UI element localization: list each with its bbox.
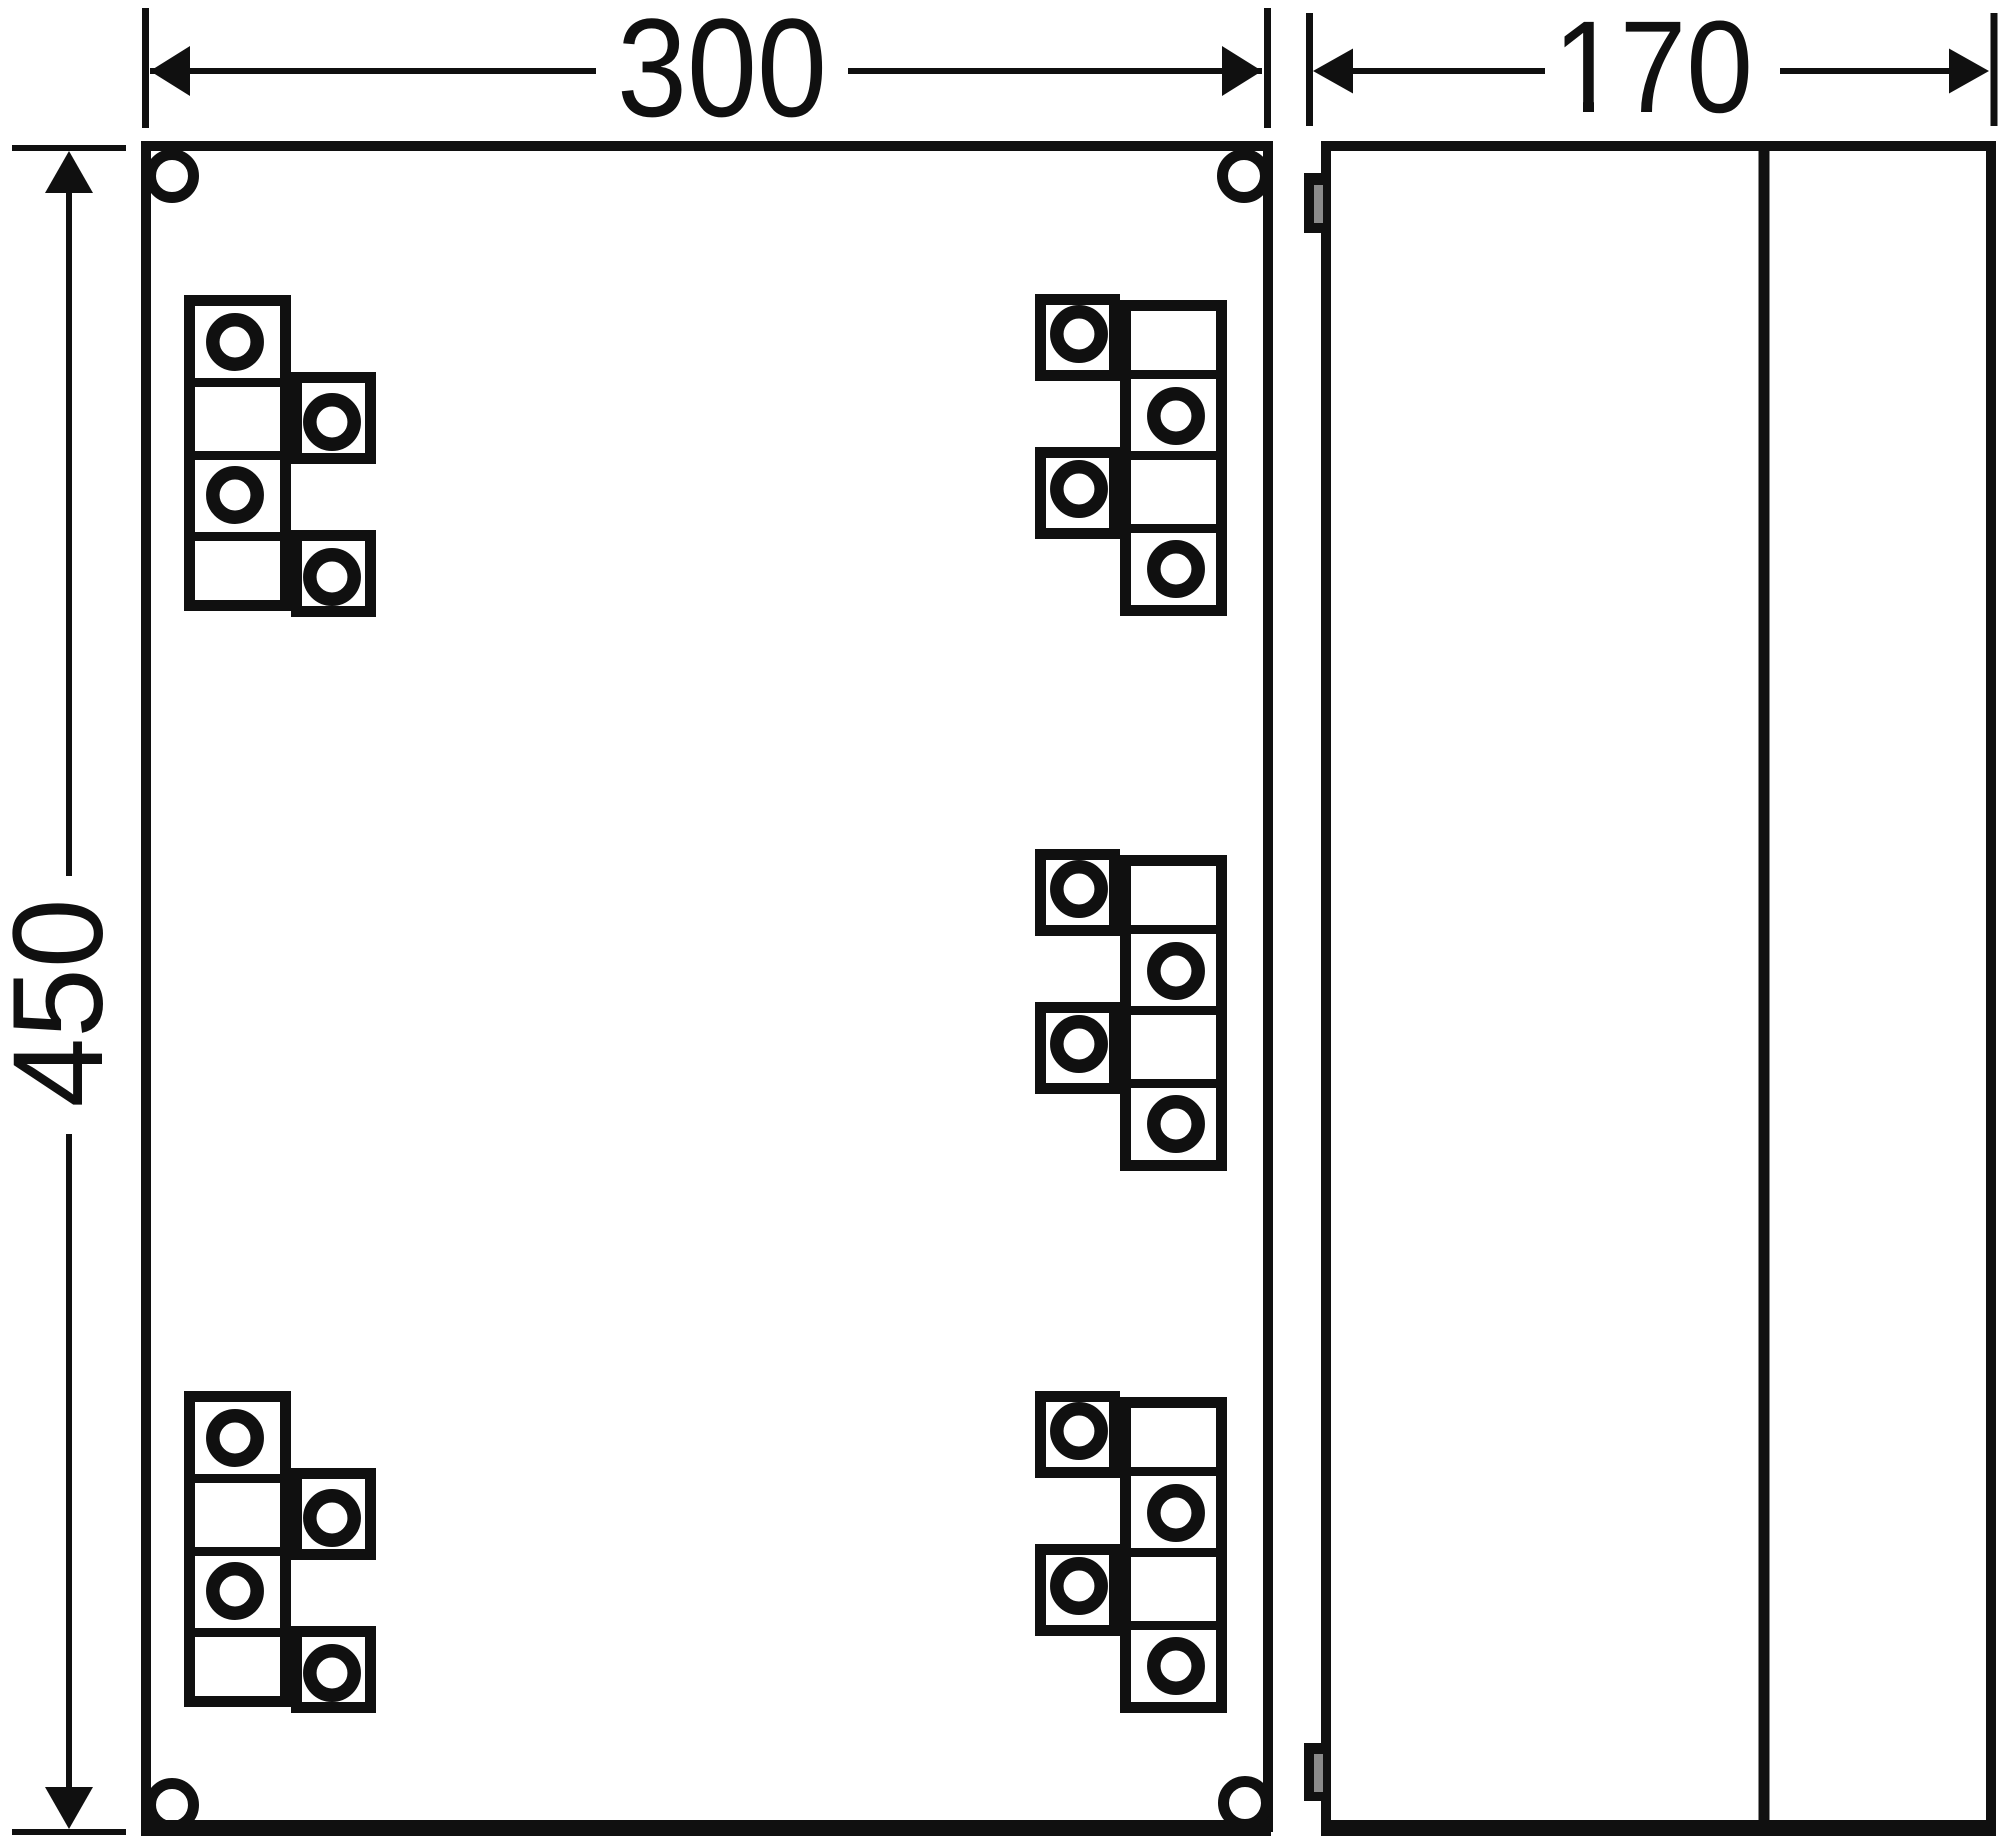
svg-text:300: 300 xyxy=(617,0,827,146)
svg-text:450: 450 xyxy=(0,899,130,1108)
svg-text:170: 170 xyxy=(1553,0,1753,140)
